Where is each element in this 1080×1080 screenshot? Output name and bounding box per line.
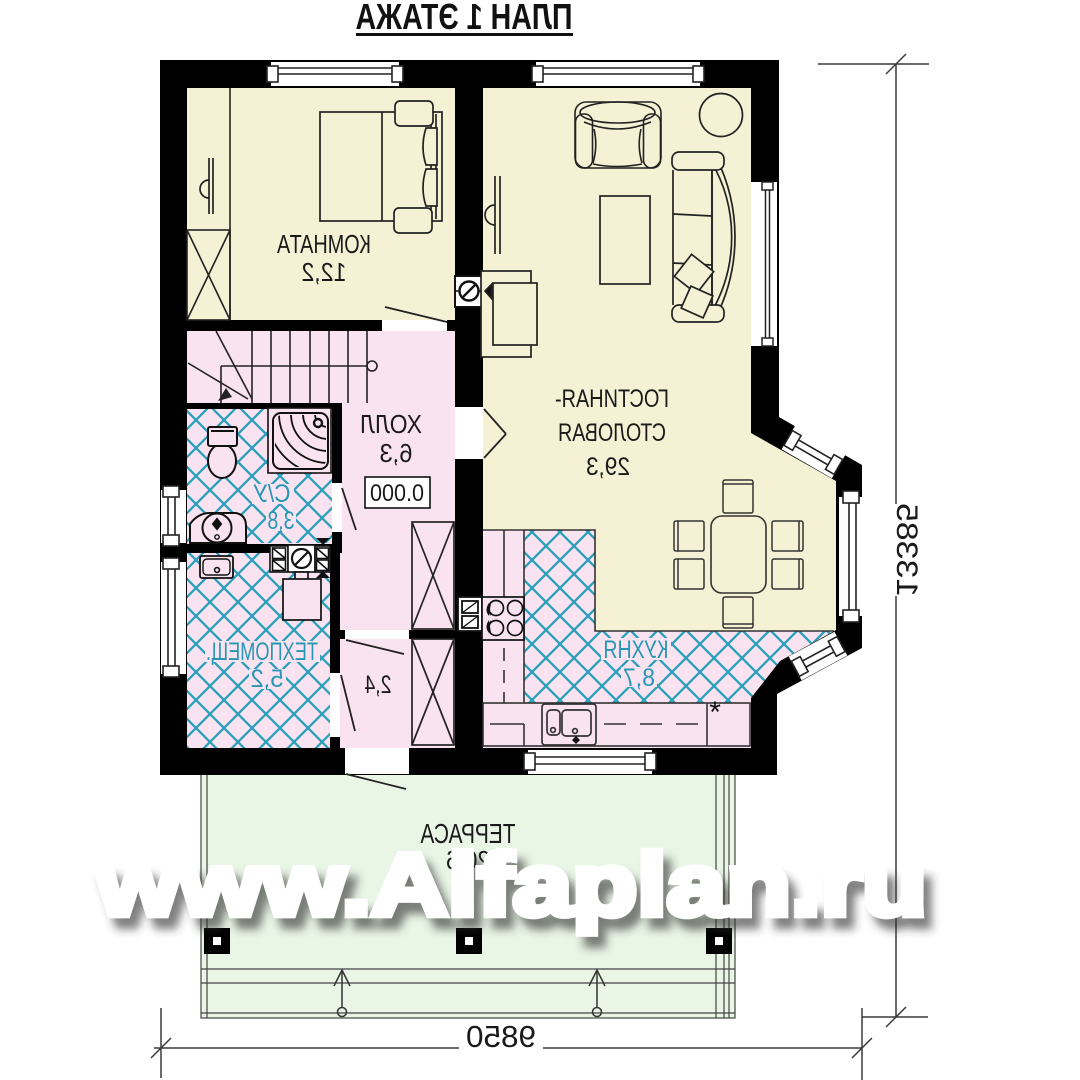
- svg-text:ГОСТИНАЯ-: ГОСТИНАЯ-: [555, 385, 669, 413]
- svg-text:6,3: 6,3: [380, 438, 413, 468]
- svg-text:9850: 9850: [466, 1019, 536, 1054]
- svg-text:ХОЛЛ: ХОЛЛ: [360, 409, 422, 439]
- svg-text:0.000: 0.000: [370, 480, 424, 507]
- svg-text:www.Alfaplan.ru: www.Alfaplan.ru: [96, 835, 927, 934]
- svg-text:СТОЛОВАЯ: СТОЛОВАЯ: [558, 419, 666, 447]
- svg-text:3,8: 3,8: [268, 507, 295, 535]
- svg-text:29,3: 29,3: [586, 453, 630, 481]
- svg-text:13385: 13385: [890, 503, 923, 597]
- svg-text:8,7: 8,7: [623, 664, 655, 692]
- svg-text:С/У: С/У: [253, 480, 290, 508]
- svg-text:ТЕХПОМЕЩ.: ТЕХПОМЕЩ.: [206, 638, 318, 666]
- svg-text:КУХНЯ: КУХНЯ: [604, 636, 669, 664]
- svg-text:*: *: [709, 696, 721, 729]
- svg-text:12,2: 12,2: [302, 257, 347, 287]
- svg-text:ПЛАН 1 ЭТАЖА: ПЛАН 1 ЭТАЖА: [356, 0, 573, 37]
- svg-text:5,2: 5,2: [251, 665, 284, 693]
- svg-text:КОМНАТА: КОМНАТА: [277, 229, 371, 259]
- svg-text:2,4: 2,4: [364, 671, 391, 699]
